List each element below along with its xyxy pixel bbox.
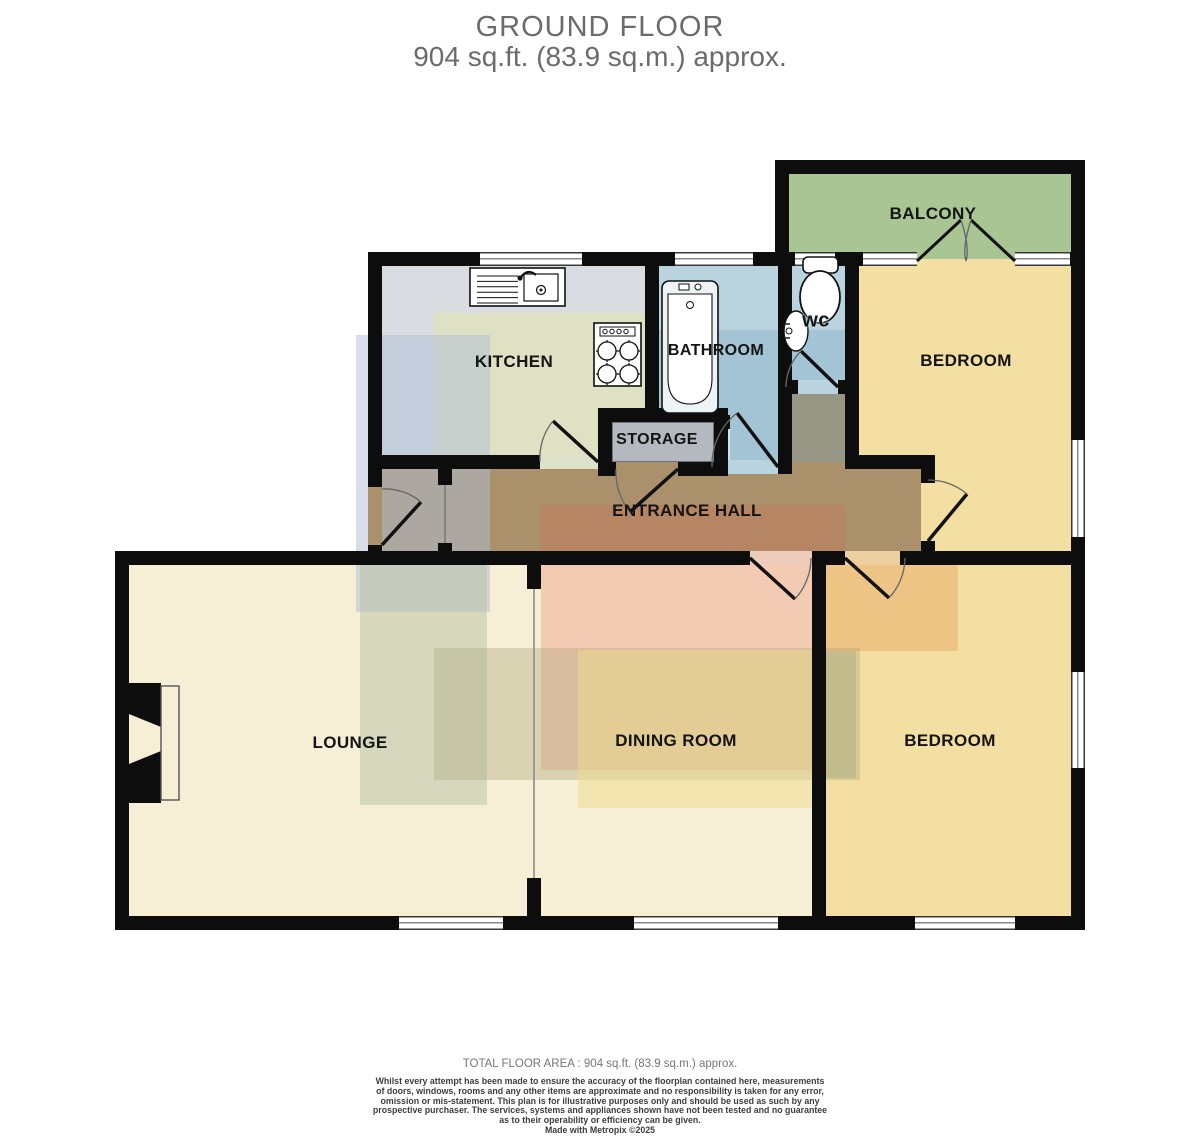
disclaimer: Whilst every attempt has been made to en…: [0, 1077, 1200, 1136]
window: [863, 252, 917, 266]
wall: [775, 160, 789, 266]
room-label-wc: wc: [802, 310, 829, 333]
wall: [503, 916, 634, 930]
floorplan-page: { "title": { "line1": "GROUND FLOOR", "l…: [0, 0, 1200, 1139]
window: [795, 252, 835, 266]
total-floor-area: TOTAL FLOOR AREA : 904 sq.ft. (83.9 sq.m…: [0, 1058, 1200, 1070]
wall: [582, 252, 675, 266]
room-label-bedroom-top: BEDROOM: [920, 351, 1012, 371]
wall: [812, 551, 826, 930]
wall: [1071, 252, 1085, 440]
room-label-balcony: BALCONY: [890, 204, 977, 224]
floor-area: 904 sq.ft. (83.9 sq.m.) approx.: [0, 42, 1200, 72]
window: [1071, 440, 1085, 537]
room-label-bedroom-bottom: BEDROOM: [904, 731, 996, 751]
window: [1015, 252, 1070, 266]
wall: [900, 551, 935, 565]
wall: [778, 916, 915, 930]
window: [915, 916, 1015, 930]
room-label-lounge: LOUNGE: [312, 733, 387, 753]
wall: [645, 266, 659, 430]
window: [675, 252, 753, 266]
divider-stub: [527, 878, 541, 916]
wall: [935, 551, 1071, 565]
credit-line: Made with Metropix ©2025: [0, 1126, 1200, 1136]
room-bathroom-vestibule: [730, 415, 778, 460]
room-label-dining-room: DINING ROOM: [615, 731, 737, 751]
room-bathroom: [659, 266, 778, 415]
room-label-storage: STORAGE: [616, 431, 698, 449]
wall: [115, 916, 399, 930]
window: [1071, 672, 1085, 768]
window: [480, 252, 582, 266]
room-label-kitchen: KITCHEN: [475, 352, 553, 372]
room-label-entrance-hall: ENTRANCE HALL: [612, 501, 762, 521]
divider-stub: [438, 462, 452, 485]
wall: [845, 252, 859, 469]
wall: [921, 455, 935, 483]
wall: [368, 469, 382, 487]
wall: [753, 252, 795, 266]
wall: [1071, 537, 1085, 672]
divider-stub: [438, 543, 452, 565]
wall: [792, 380, 798, 394]
wall: [838, 380, 845, 394]
wall: [368, 252, 382, 469]
window: [399, 916, 503, 930]
door-gap: [917, 252, 1015, 259]
wall: [368, 252, 480, 266]
footer: TOTAL FLOOR AREA : 904 sq.ft. (83.9 sq.m…: [0, 1058, 1200, 1136]
door-gap: [368, 487, 382, 545]
room-label-bathroom: BATHROOM: [668, 342, 764, 360]
door-gap: [917, 259, 1015, 266]
plan-title: GROUND FLOOR 904 sq.ft. (83.9 sq.m.) app…: [0, 12, 1200, 72]
wall: [775, 160, 1085, 174]
divider-stub: [527, 551, 541, 589]
window: [634, 916, 778, 930]
wall: [778, 266, 792, 474]
wall: [115, 551, 750, 565]
wall: [368, 455, 540, 469]
wall: [115, 551, 129, 930]
floor-name: GROUND FLOOR: [0, 12, 1200, 42]
wall: [1071, 160, 1085, 266]
wall: [1071, 768, 1085, 930]
